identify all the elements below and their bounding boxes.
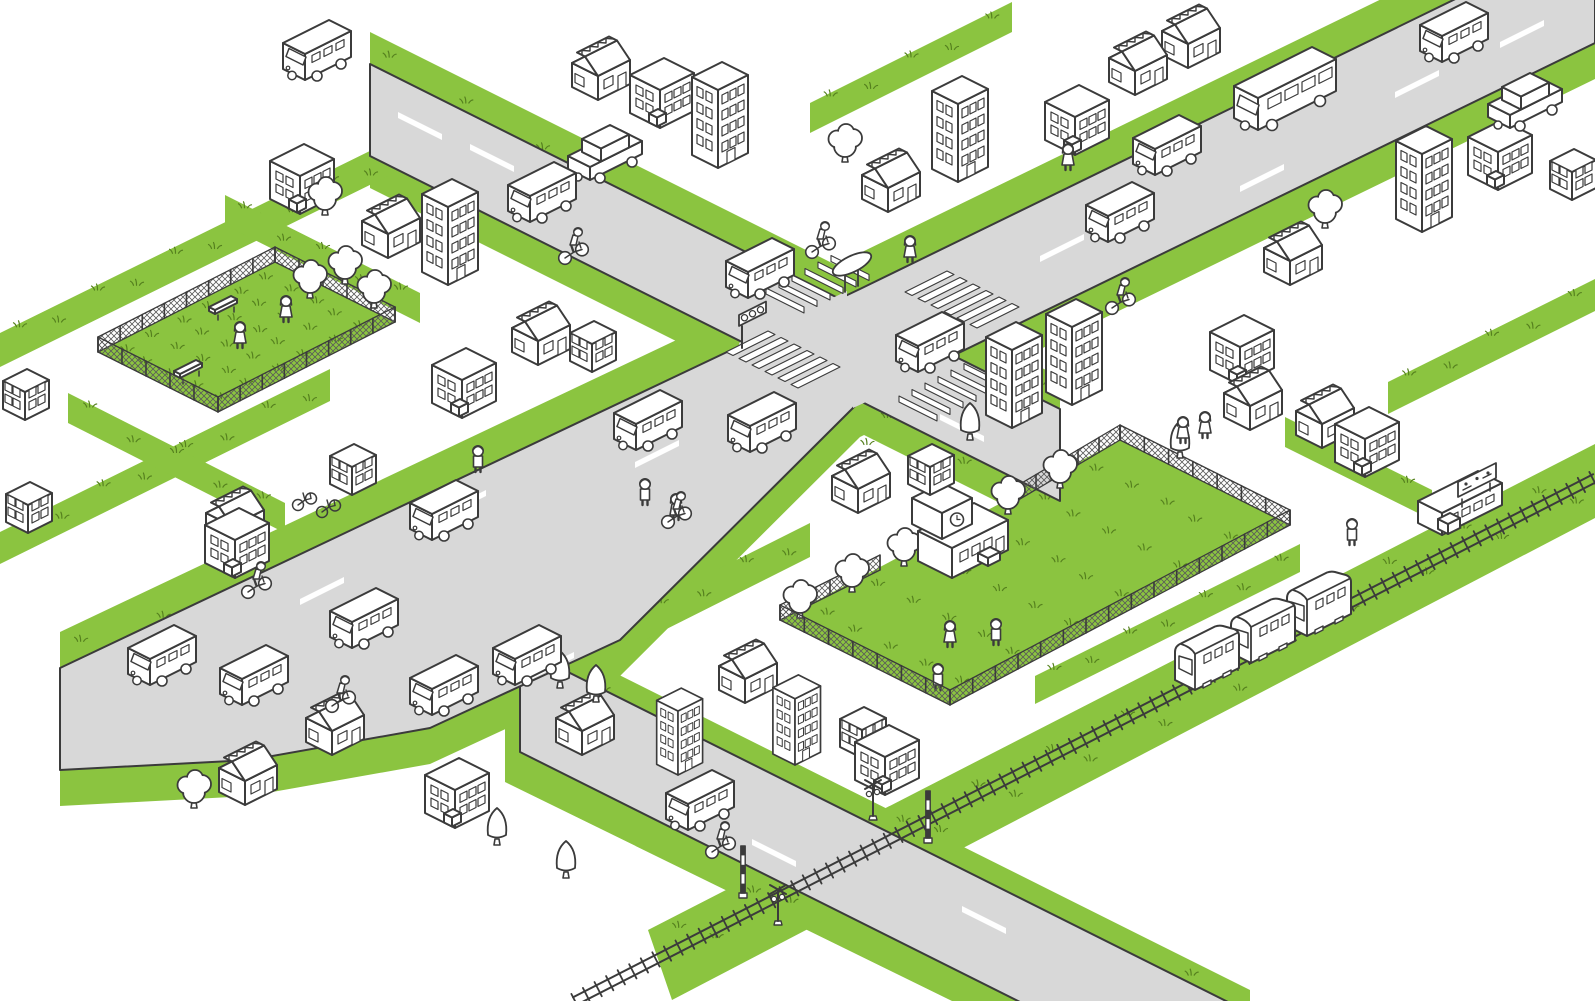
tower-building (773, 675, 821, 765)
house (719, 640, 777, 704)
entrance-annex (451, 399, 468, 417)
office-building (432, 348, 496, 418)
illustration-stage (0, 0, 1595, 1001)
small-office-building (908, 444, 954, 495)
tree (829, 124, 863, 162)
house (362, 195, 420, 259)
strip-g (1388, 279, 1595, 414)
house (572, 37, 630, 101)
entrance-annex (224, 559, 241, 577)
house (1109, 32, 1167, 96)
tower-building (1396, 126, 1452, 232)
van (283, 20, 351, 81)
crossing-barrier-pole (739, 846, 747, 898)
boy (1347, 519, 1357, 545)
tower-building (1046, 299, 1102, 405)
girl (1199, 412, 1211, 438)
tower-building (692, 62, 748, 168)
entrance-annex (1487, 171, 1504, 189)
small-office-building (1550, 149, 1595, 200)
small-office-building (570, 321, 616, 372)
office-building (630, 58, 694, 128)
house (862, 149, 920, 213)
tower-building (657, 688, 703, 775)
small-office-building (6, 482, 52, 533)
tree (488, 808, 507, 845)
office-building (425, 758, 489, 828)
entrance-annex (289, 195, 306, 213)
small-office-building (3, 369, 49, 420)
entrance-annex (444, 809, 461, 827)
entrance-annex (649, 109, 666, 127)
tower-building (422, 179, 478, 285)
tower-building (932, 76, 988, 182)
crossing-barrier-pole (924, 791, 932, 843)
entrance-annex (1354, 458, 1371, 476)
parked-bicycle (293, 493, 317, 511)
house (512, 302, 570, 366)
house (832, 450, 890, 514)
tree (557, 841, 576, 878)
tower-building (986, 322, 1042, 428)
small-office-building (330, 444, 376, 495)
isometric-town-illustration (0, 0, 1595, 1001)
house (1162, 5, 1220, 69)
cyclist (806, 222, 836, 259)
south-road-verge (505, 618, 1250, 1001)
